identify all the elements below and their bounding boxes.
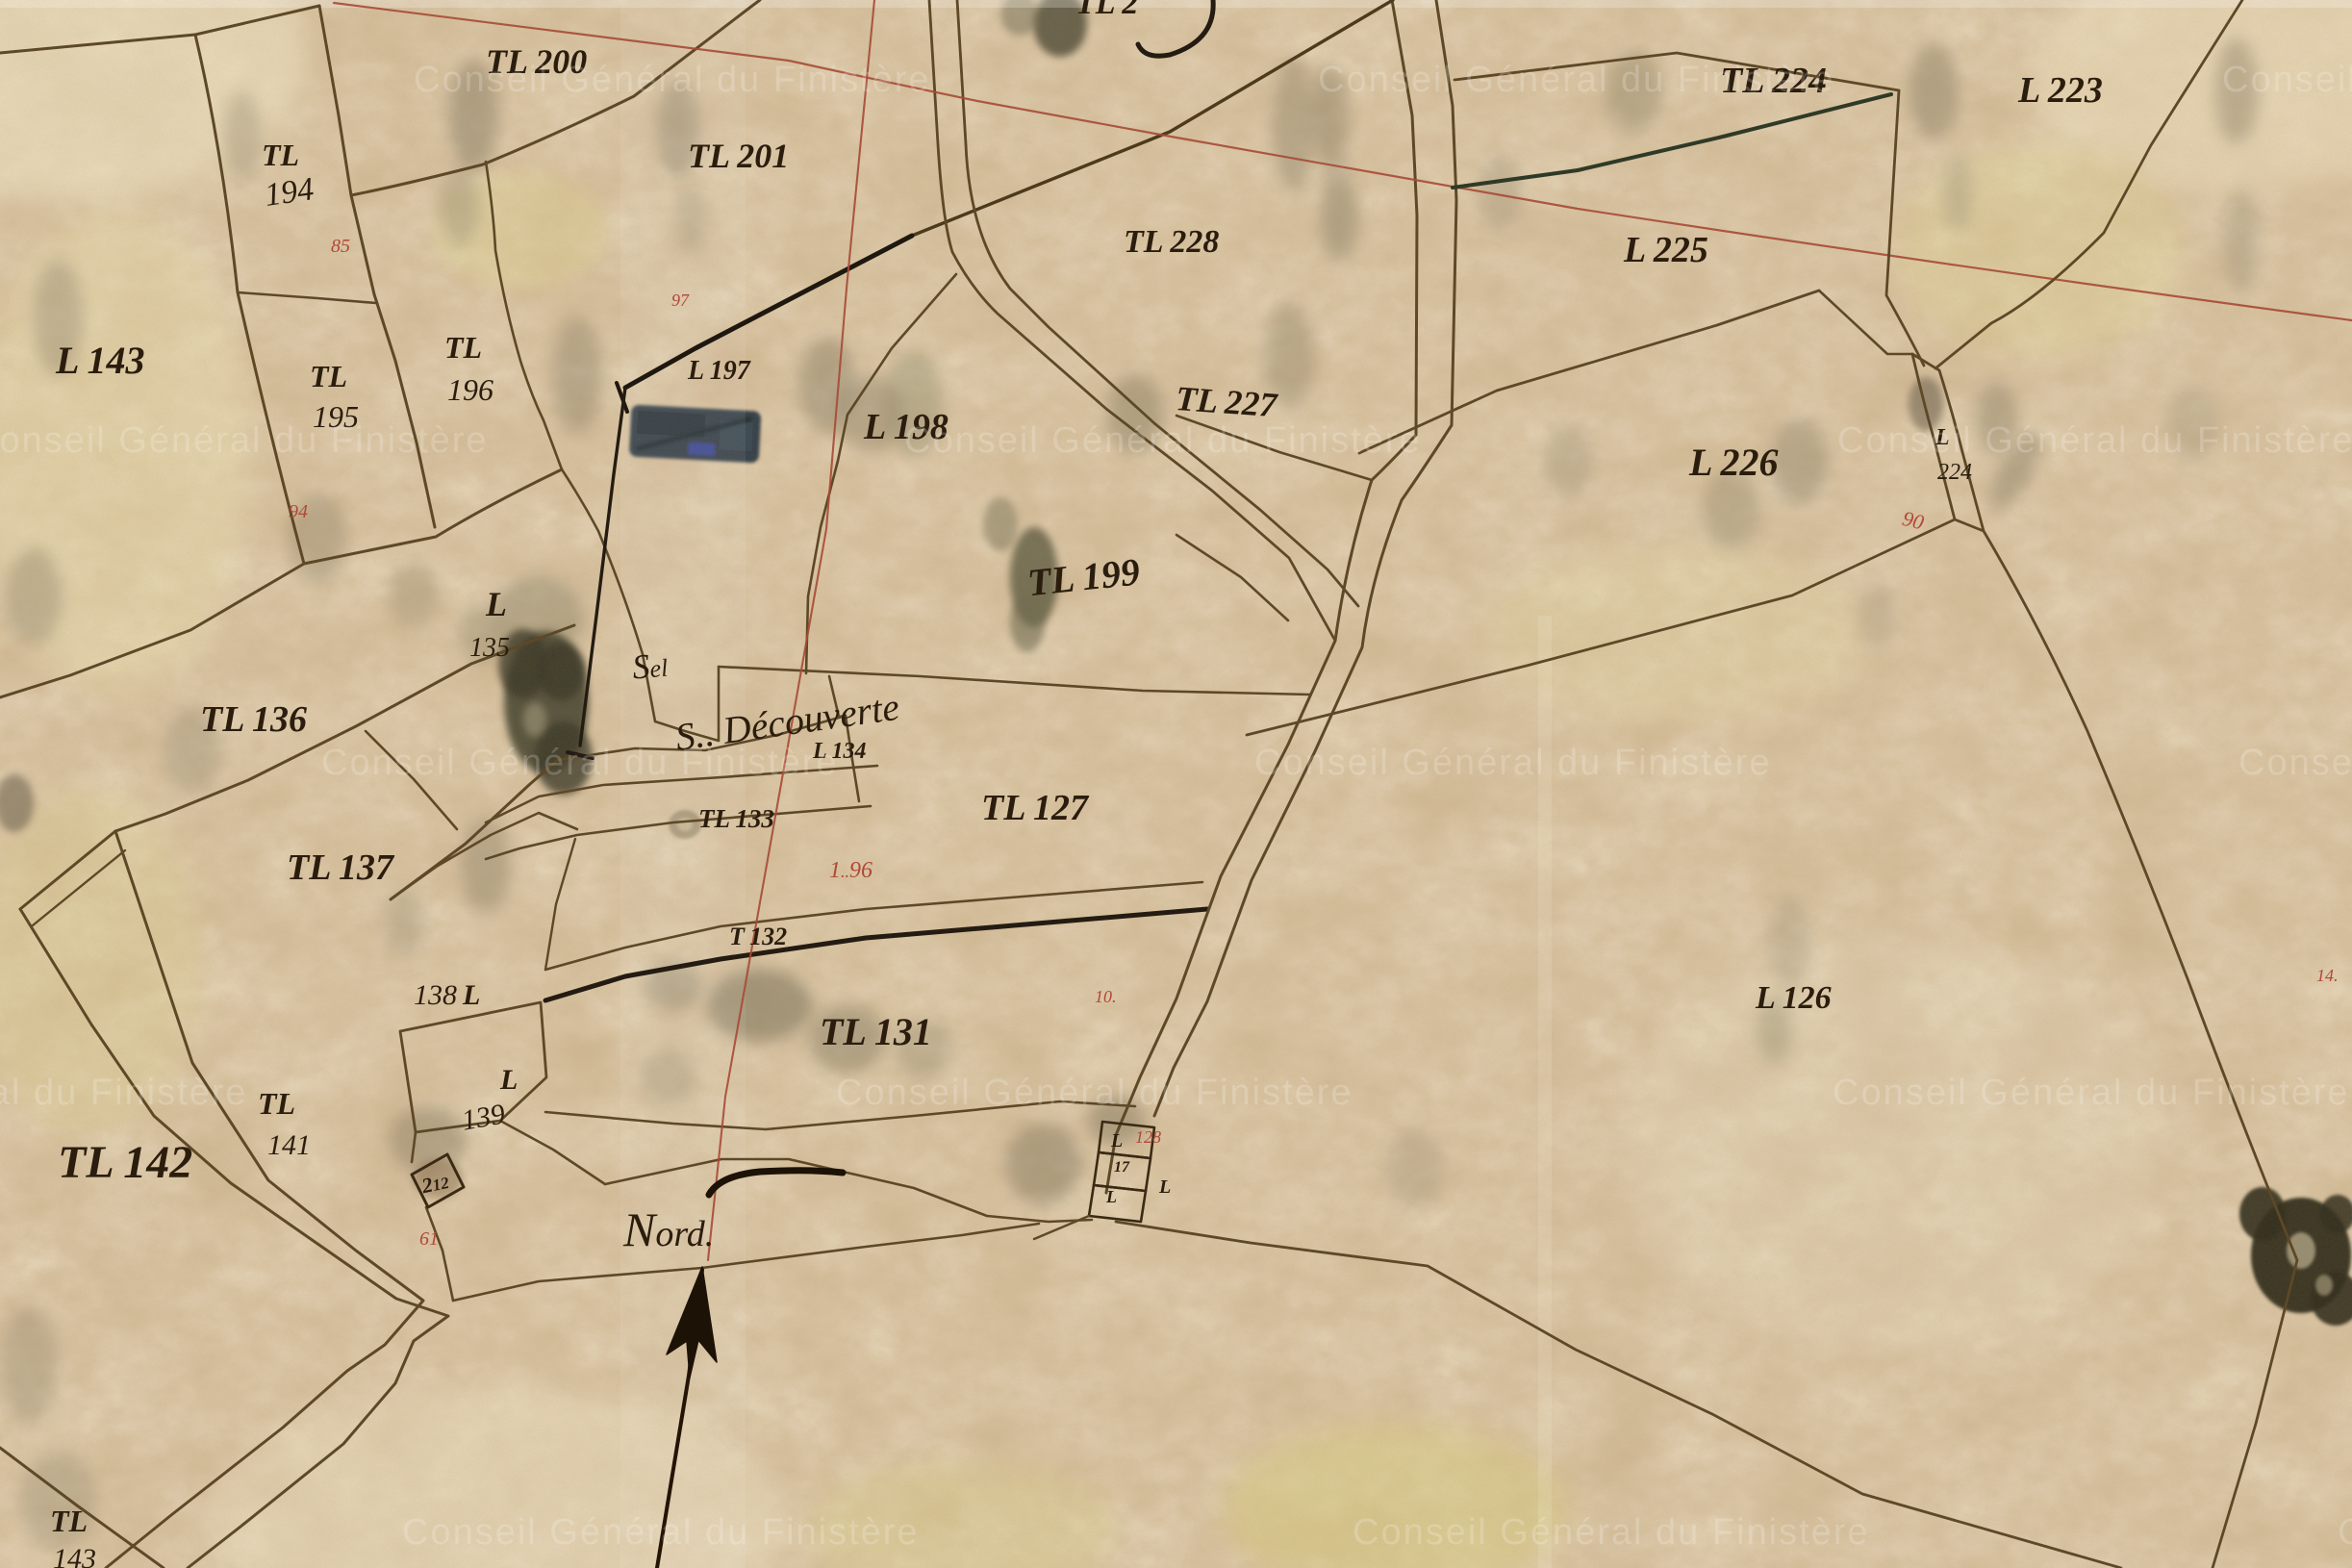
svg-text:Conseil Général du Finistère: Conseil Général du Finistère <box>1833 1073 2350 1113</box>
svg-text:Conseil Général du Finistère: Conseil Général du Finistère <box>1837 420 2352 461</box>
svg-text:TL 201: TL 201 <box>688 137 789 175</box>
svg-text:L 223: L 223 <box>2017 70 2103 111</box>
svg-text:Conseil Général du Finistère: Conseil Général du Finistère <box>1318 60 1835 100</box>
svg-text:224: 224 <box>1937 460 1972 485</box>
svg-text:Conseil Général du Finistère: Conseil Général du Finistère <box>2238 743 2352 783</box>
svg-text:Conseil Général du Finistère: Conseil Général du Finistère <box>414 60 931 100</box>
svg-text:94: 94 <box>289 501 308 522</box>
svg-text:TL: TL <box>444 330 482 365</box>
svg-text:Conseil Général du Finistère: Conseil Général du Finistère <box>321 743 839 783</box>
svg-text:TL: TL <box>310 359 347 393</box>
svg-text:L 143: L 143 <box>55 339 144 382</box>
svg-text:10.: 10. <box>1095 987 1117 1006</box>
svg-text:TL 127: TL 127 <box>981 788 1090 828</box>
svg-text:L: L <box>485 585 507 623</box>
svg-text:Conseil Général du Finistère: Conseil Général du Finistère <box>2338 1512 2352 1553</box>
svg-text:TL 131: TL 131 <box>820 1010 932 1053</box>
svg-text:L: L <box>1110 1130 1123 1151</box>
svg-text:17: 17 <box>1114 1159 1130 1176</box>
svg-text:TL: TL <box>50 1504 88 1538</box>
svg-text:85: 85 <box>331 236 350 257</box>
svg-text:14.: 14. <box>2316 966 2339 985</box>
svg-text:TL 2: TL 2 <box>1075 0 1138 21</box>
svg-text:TL 136: TL 136 <box>200 699 307 740</box>
svg-text:196: 196 <box>447 372 493 407</box>
svg-text:TL 137: TL 137 <box>287 847 395 888</box>
svg-text:194: 194 <box>263 171 316 214</box>
svg-text:Conseil Général du Finistère: Conseil Général du Finistère <box>1353 1512 1870 1553</box>
svg-text:L: L <box>1158 1176 1171 1198</box>
svg-text:L: L <box>1105 1187 1117 1206</box>
svg-text:TL 227: TL 227 <box>1175 379 1280 424</box>
svg-text:L 226: L 226 <box>1688 441 1778 484</box>
svg-text:141: 141 <box>267 1129 311 1161</box>
svg-text:TL: TL <box>258 1086 295 1121</box>
svg-text:TL 142: TL 142 <box>58 1137 192 1188</box>
svg-text:Conseil Général du Finistère: Conseil Général du Finistère <box>836 1073 1353 1113</box>
svg-text:Conseil Général du Finistère: Conseil Général du Finistère <box>2222 60 2352 100</box>
svg-text:135: 135 <box>469 633 510 663</box>
svg-text:Conseil Général du Finistère: Conseil Général du Finistère <box>402 1512 920 1553</box>
svg-text:L 126: L 126 <box>1755 980 1832 1016</box>
svg-text:T 132: T 132 <box>729 923 787 950</box>
svg-text:L 225: L 225 <box>1623 230 1708 270</box>
svg-text:97: 97 <box>671 291 690 310</box>
svg-text:Conseil Général du Finistère: Conseil Général du Finistère <box>904 420 1422 461</box>
svg-text:143: 143 <box>53 1543 96 1568</box>
svg-text:1..96: 1..96 <box>829 858 873 883</box>
svg-text:128: 128 <box>1135 1127 1161 1147</box>
svg-text:61: 61 <box>419 1228 439 1250</box>
svg-text:L 197: L 197 <box>687 356 751 386</box>
svg-text:TL 133: TL 133 <box>698 804 774 833</box>
svg-text:Conseil Général du Finistère: Conseil Général du Finistère <box>1254 743 1772 783</box>
svg-text:Conseil Général du Finistère: Conseil Général du Finistère <box>0 1073 248 1113</box>
svg-text:TL: TL <box>262 138 299 172</box>
svg-text:138 L: 138 L <box>414 979 480 1011</box>
svg-text:L: L <box>499 1064 518 1096</box>
svg-text:Conseil Général du Finistère: Conseil Général du Finistère <box>0 420 489 461</box>
svg-text:TL 228: TL 228 <box>1124 224 1219 260</box>
